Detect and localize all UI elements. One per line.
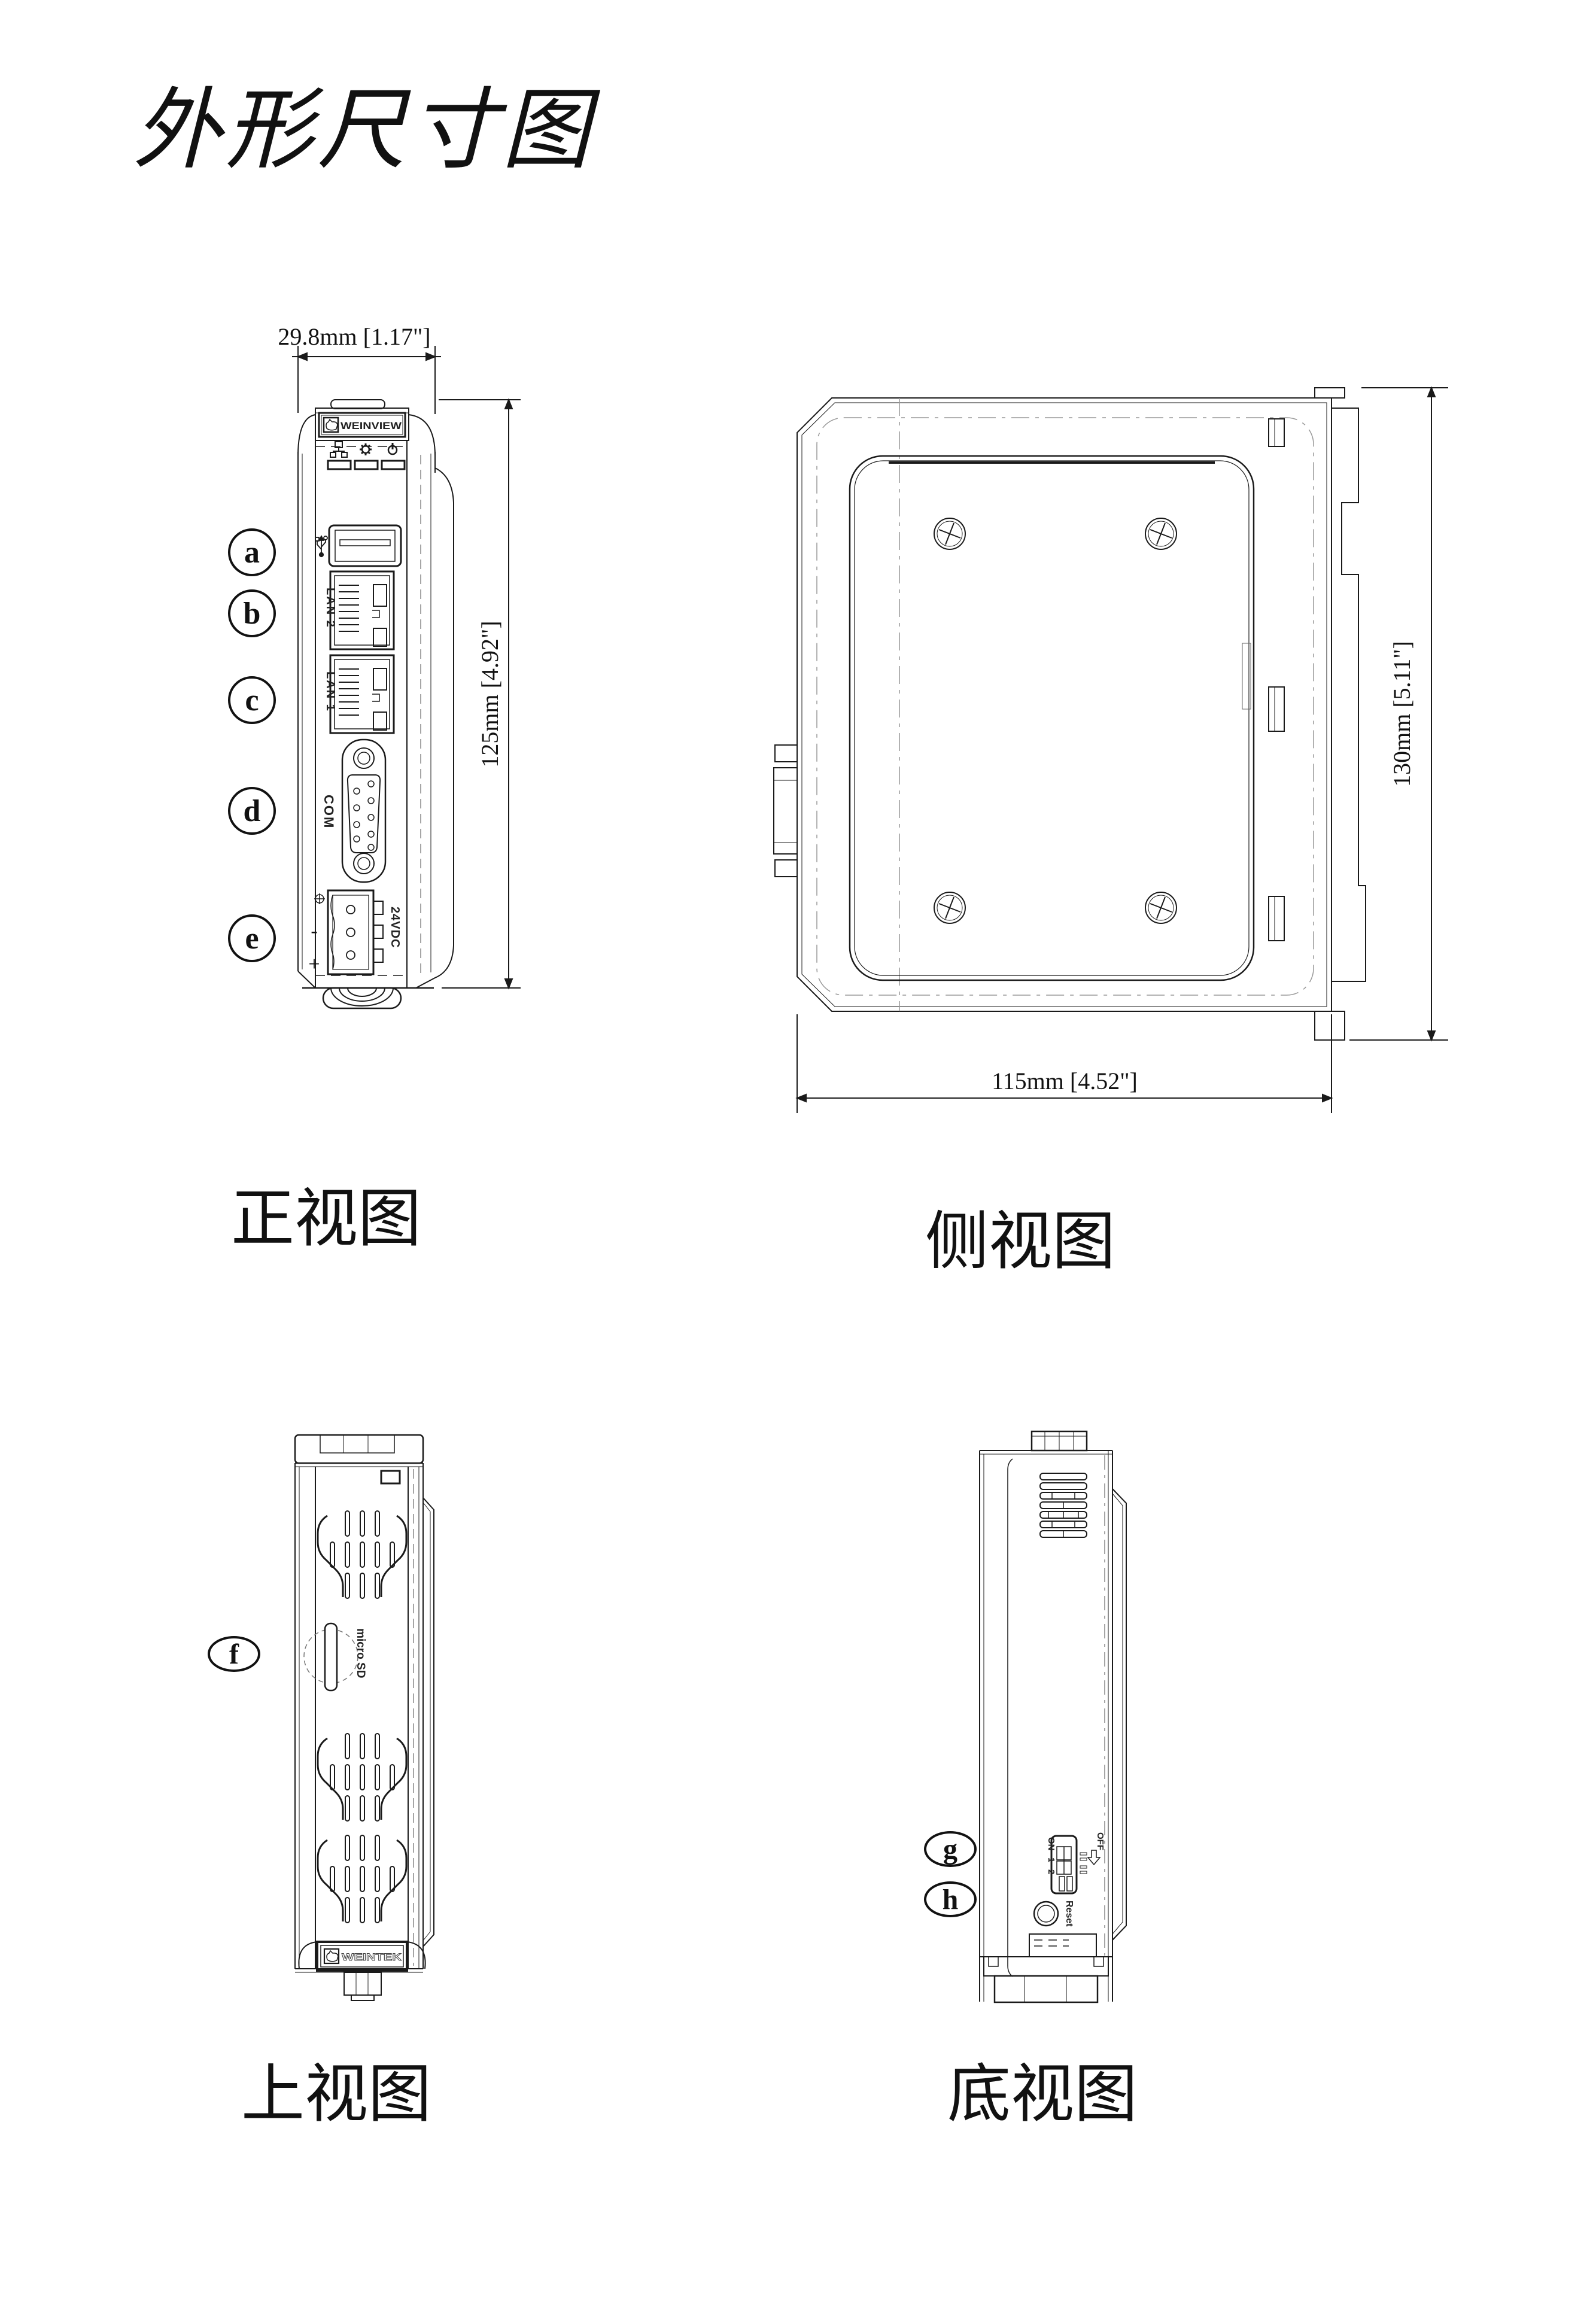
screw-bottom-left bbox=[934, 892, 965, 923]
callout-g: g bbox=[924, 1831, 977, 1867]
top-device-outline bbox=[295, 1435, 423, 1969]
callout-c-letter: c bbox=[245, 683, 259, 718]
lan2-port: LAN 2 bbox=[324, 571, 394, 649]
com-label: COM bbox=[321, 795, 336, 829]
panel-screws bbox=[934, 518, 1177, 923]
touch-hand-icon bbox=[324, 418, 338, 432]
reset-label: Reset bbox=[1064, 1901, 1074, 1927]
callout-d-letter: d bbox=[244, 793, 261, 829]
callout-a: a bbox=[228, 528, 276, 576]
side-width-dimension: 115mm [4.52"] bbox=[797, 1014, 1331, 1113]
touch-hand-icon bbox=[324, 1949, 339, 1963]
side-view-drawing: 130mm [5.11"] 115mm [4.52"] bbox=[760, 371, 1454, 1137]
screw-bottom-right bbox=[1145, 892, 1177, 923]
side-height-dimension: 130mm [5.11"] bbox=[1349, 388, 1448, 1040]
callout-f-letter: f bbox=[229, 1638, 239, 1671]
side-width-dim-text: 115mm [4.52"] bbox=[992, 1068, 1138, 1094]
dip-pos1-label: 1 bbox=[1046, 1857, 1056, 1862]
front-view-caption: 正视图 bbox=[224, 1167, 428, 1259]
power-terminal-label: 24VDC bbox=[388, 907, 402, 948]
status-leds bbox=[328, 442, 405, 469]
com-port: COM bbox=[321, 740, 385, 882]
terminal-minus: - bbox=[311, 920, 317, 942]
terminal-plus: + bbox=[308, 953, 320, 975]
callout-b: b bbox=[228, 589, 276, 637]
top-brand-logo: WEINTEK bbox=[295, 1942, 425, 2000]
front-brand-logo: WEINVIEW bbox=[319, 413, 405, 437]
bottom-base bbox=[980, 1934, 1112, 2002]
callout-e: e bbox=[228, 914, 276, 962]
top-brand-text: WEINTEK bbox=[342, 1951, 402, 1963]
callout-a-letter: a bbox=[244, 535, 260, 570]
led-bar-power bbox=[382, 461, 405, 469]
side-device-outline bbox=[797, 398, 1331, 1011]
side-db9-connector bbox=[774, 745, 797, 877]
vent-cluster-3 bbox=[318, 1835, 406, 1923]
vent-cluster-2 bbox=[318, 1734, 406, 1821]
dip-on-label: ON bbox=[1046, 1837, 1056, 1851]
micro-sd-label: micro SD bbox=[354, 1628, 367, 1678]
bottom-view-drawing: ON 1 2 OFF Reset bbox=[957, 1424, 1155, 2029]
usb-port bbox=[315, 525, 401, 566]
reset-button: Reset bbox=[1034, 1901, 1074, 1927]
callout-b-letter: b bbox=[244, 596, 261, 631]
power-led-icon bbox=[388, 443, 397, 454]
vent-cluster-1 bbox=[318, 1511, 406, 1598]
lan1-label: LAN 1 bbox=[324, 671, 337, 712]
front-width-dim-text: 29.8mm [1.17"] bbox=[278, 323, 430, 350]
front-width-dimension: 29.8mm [1.17"] bbox=[278, 323, 441, 414]
led-bar-system bbox=[355, 461, 378, 469]
mounting-panel bbox=[850, 456, 1254, 980]
callout-d: d bbox=[228, 787, 276, 835]
callout-h: h bbox=[924, 1881, 977, 1917]
front-device-outline bbox=[298, 400, 454, 1008]
lan1-port: LAN 1 bbox=[324, 655, 394, 733]
top-slot-detail bbox=[381, 1471, 400, 1483]
bottom-device-outline bbox=[980, 1431, 1112, 2002]
screw-top-left bbox=[934, 518, 965, 549]
dip-off-label: OFF bbox=[1095, 1832, 1105, 1850]
din-rail-mount bbox=[1269, 388, 1366, 1040]
lan2-label: LAN 2 bbox=[324, 588, 337, 628]
top-din-clip-edge bbox=[423, 1498, 434, 1947]
front-height-dim-text: 125mm [4.92"] bbox=[476, 621, 503, 767]
dip-arrow-icon bbox=[1088, 1850, 1100, 1865]
top-view-drawing: micro SD WEINTEK bbox=[272, 1427, 470, 2026]
callout-e-letter: e bbox=[245, 921, 259, 956]
network-led-icon bbox=[330, 442, 347, 457]
side-view-caption: 侧视图 bbox=[919, 1190, 1122, 1282]
callout-c: c bbox=[228, 676, 276, 724]
bottom-din-clip-edge bbox=[1112, 1489, 1126, 1940]
led-bar-lan bbox=[328, 461, 351, 469]
bottom-vents bbox=[1040, 1473, 1087, 1537]
power-terminal: - + 24VDC bbox=[308, 890, 402, 975]
callout-g-letter: g bbox=[943, 1833, 957, 1866]
usb-icon bbox=[315, 536, 327, 557]
sd-card-slot: micro SD bbox=[304, 1623, 367, 1690]
screw-top-right bbox=[1145, 518, 1177, 549]
dip-switch: ON 1 2 OFF bbox=[1046, 1832, 1105, 1893]
callout-h-letter: h bbox=[943, 1883, 959, 1916]
callout-f: f bbox=[208, 1636, 260, 1672]
dip-pos2-label: 2 bbox=[1046, 1869, 1056, 1874]
top-view-caption: 上视图 bbox=[235, 2042, 438, 2134]
gear-led-icon bbox=[360, 443, 372, 455]
bottom-view-caption: 底视图 bbox=[941, 2042, 1144, 2134]
front-brand-text: WEINVIEW bbox=[341, 420, 402, 431]
page-title: 外形尺寸图 bbox=[133, 57, 594, 186]
side-height-dim-text: 130mm [5.11"] bbox=[1388, 641, 1415, 787]
